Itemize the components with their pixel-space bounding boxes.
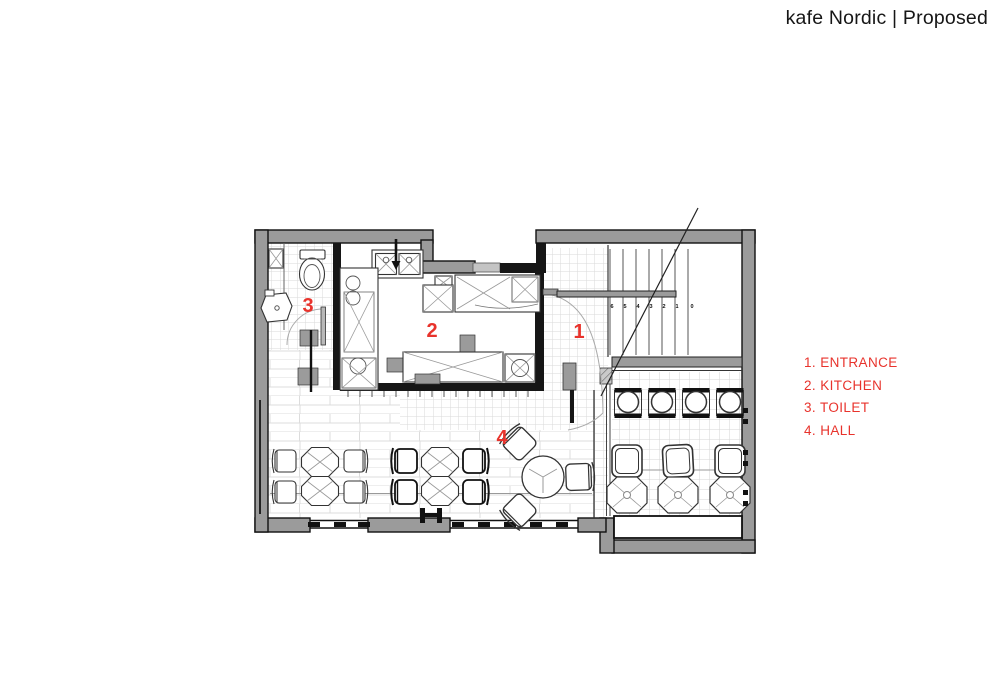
room-marker-toilet: 3 <box>302 295 313 317</box>
stair-handrail <box>557 291 676 297</box>
page-title: kafe Nordic | Proposed <box>786 7 988 29</box>
tread-number: 1 <box>675 304 678 310</box>
tread-number: 3 <box>649 304 652 310</box>
tread-number: 0 <box>690 304 693 310</box>
legend: 1. ENTRANCE 2. KITCHEN 3. TOILET 4. HALL <box>804 355 898 438</box>
tread-number: 5 <box>623 304 626 310</box>
room-marker-entrance: 1 <box>573 321 584 343</box>
room-marker-kitchen: 2 <box>426 320 437 342</box>
legend-item-kitchen: 2. KITCHEN <box>804 378 882 393</box>
double-sink <box>372 239 423 278</box>
vent-shaft <box>269 249 283 268</box>
toilet-stub-b <box>298 368 318 385</box>
legend-item-toilet: 3. TOILET <box>804 400 869 415</box>
floor-plan-drawing: 6 5 4 3 2 1 0 <box>0 0 1000 675</box>
rear-door <box>473 263 500 272</box>
kitchen-equipment-mid <box>423 276 453 312</box>
bottom-wall-seg3 <box>578 518 606 532</box>
entrance-column <box>563 363 576 390</box>
kitchen-stub-a <box>387 358 405 372</box>
kitchen-stub-b <box>460 335 475 352</box>
room-marker-hall: 4 <box>496 427 508 449</box>
legend-item-entrance: 1. ENTRANCE <box>804 355 898 370</box>
sink-fixture <box>261 290 292 322</box>
page: 6 5 4 3 2 1 0 <box>0 0 1000 675</box>
entry-door-leaf <box>543 289 558 295</box>
stair-tread-numbers: 6 5 4 3 2 1 0 <box>610 304 693 310</box>
left-wall <box>255 230 268 532</box>
toilet-fixture <box>300 250 326 290</box>
terrace-tables <box>607 477 750 513</box>
rear-black-wall <box>500 263 540 273</box>
top-wall-left <box>255 230 433 243</box>
tread-number: 2 <box>662 304 665 310</box>
kitchen-counter-bottom <box>403 352 535 384</box>
entrance-stub-line <box>570 390 574 423</box>
top-wall-right <box>536 230 755 243</box>
kitchen-range-unit <box>455 275 540 312</box>
tread-number: 4 <box>636 304 640 310</box>
terrace-chairs <box>612 444 745 478</box>
top-wall-lower <box>421 261 475 273</box>
bench <box>614 516 742 538</box>
corridor-floor-tiles <box>594 430 608 518</box>
tread-number: 6 <box>610 304 613 310</box>
bottom-wall-right <box>612 540 755 553</box>
legend-item-hall: 4. HALL <box>804 423 856 438</box>
kitchen-counter-left <box>340 268 378 390</box>
stair-landing-wall <box>612 357 742 367</box>
toilet-stub-a <box>300 330 318 346</box>
